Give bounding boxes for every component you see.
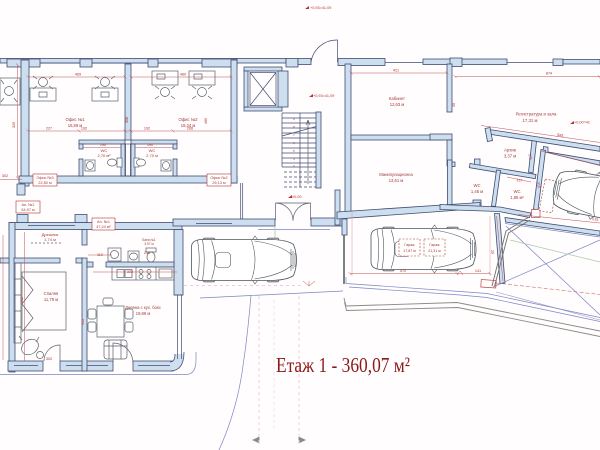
svg-text:460: 460 (204, 118, 208, 124)
svg-text:2,70 м²: 2,70 м² (98, 153, 112, 158)
svg-text:Офис №2: Офис №2 (178, 117, 198, 122)
svg-text:402: 402 (20, 297, 24, 303)
svg-text:192: 192 (144, 127, 150, 131)
svg-text:421: 421 (393, 69, 399, 73)
svg-text:25,13 м: 25,13 м (212, 181, 226, 185)
svg-text:190: 190 (100, 143, 106, 147)
svg-text:302: 302 (2, 174, 8, 178)
svg-text:320: 320 (12, 122, 16, 128)
svg-text:Дневна с кух. бокс: Дневна с кух. бокс (125, 305, 161, 310)
svg-text:Офис №3: Офис №3 (36, 176, 53, 180)
svg-text:3,97 м: 3,97 м (144, 242, 153, 246)
svg-text:308: 308 (125, 117, 129, 123)
svg-text:Кабинет: Кабинет (389, 96, 405, 101)
svg-text:Ап. №1: Ап. №1 (97, 220, 110, 224)
svg-text:241: 241 (144, 251, 150, 255)
svg-text:Гараж: Гараж (404, 243, 415, 247)
svg-text:1,46 м: 1,46 м (471, 189, 483, 194)
svg-text:2,70 м: 2,70 м (146, 153, 158, 158)
svg-text:19,89 м: 19,89 м (136, 311, 151, 316)
svg-text:874: 874 (546, 72, 552, 76)
svg-text:Регистратура и зала: Регистратура и зала (516, 112, 557, 117)
svg-text:445: 445 (81, 319, 85, 325)
svg-text:+0,93=41,09: +0,93=41,09 (313, 94, 334, 98)
svg-text:141: 141 (475, 269, 481, 273)
svg-text:Манипулационна: Манипулационна (379, 172, 413, 177)
svg-text:227: 227 (46, 127, 52, 131)
svg-text:WC: WC (514, 189, 521, 194)
svg-text:47,24 м²: 47,24 м² (96, 225, 111, 229)
svg-text:17,87 м: 17,87 м (403, 249, 416, 253)
svg-text:Архив: Архив (504, 148, 517, 153)
svg-text:302: 302 (46, 357, 52, 361)
svg-text:Спалня: Спалня (44, 291, 59, 296)
svg-text:+0,00=41: +0,00=41 (574, 121, 590, 125)
svg-text:+0,93=41,09: +0,93=41,09 (310, 6, 331, 10)
svg-text:40: 40 (452, 103, 456, 107)
svg-text:1,85 м²: 1,85 м² (510, 195, 524, 200)
svg-text:22,80 м: 22,80 м (38, 181, 52, 185)
svg-text:12,61 м: 12,61 м (389, 178, 404, 183)
svg-text:Етаж 1 - 360,07 м²: Етаж 1 - 360,07 м² (276, 353, 410, 377)
svg-text:12,63 м: 12,63 м (390, 102, 405, 107)
svg-text:25: 25 (490, 250, 494, 255)
svg-text:Офис №2: Офис №2 (210, 176, 227, 180)
svg-text:WC: WC (474, 183, 481, 188)
svg-text:Офис №1: Офис №1 (65, 117, 85, 122)
svg-text:54,97 м: 54,97 м (21, 208, 35, 212)
svg-text:1,74 м: 1,74 м (44, 237, 56, 242)
svg-text:469: 469 (75, 73, 81, 77)
svg-text:266: 266 (187, 127, 193, 131)
svg-text:192: 192 (81, 127, 87, 131)
svg-text:11,79 м: 11,79 м (44, 297, 58, 302)
svg-text:460: 460 (180, 73, 186, 77)
svg-text:±0,00: ±0,00 (292, 195, 301, 199)
svg-text:3,37 м: 3,37 м (504, 154, 516, 159)
svg-text:21,31 м: 21,31 м (428, 249, 441, 253)
svg-text:Ап. №2: Ап. №2 (22, 203, 35, 207)
svg-text:17,31 м: 17,31 м (523, 118, 538, 123)
svg-text:190: 190 (147, 143, 153, 147)
svg-text:Гараж: Гараж (429, 243, 440, 247)
